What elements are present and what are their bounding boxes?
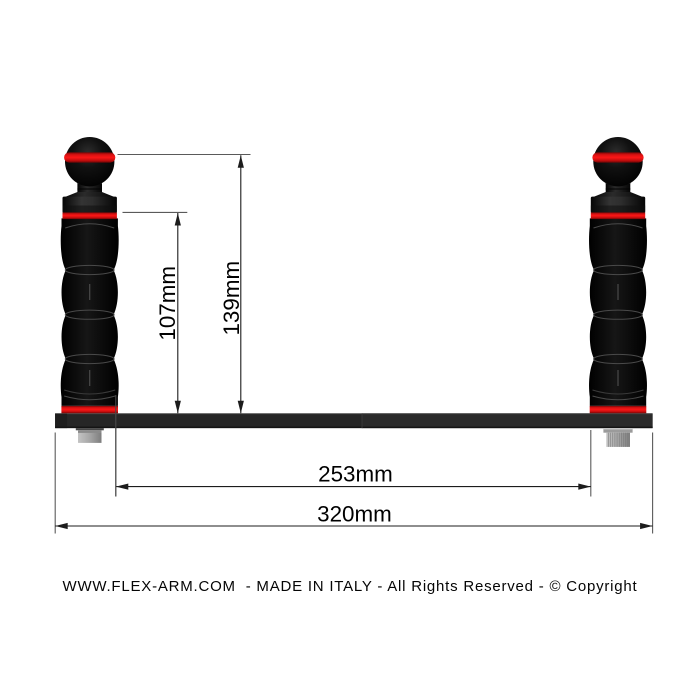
svg-text:WWW.FLEX-ARM.COM - MADE IN IT: WWW.FLEX-ARM.COM - MADE IN ITALY - All R…	[63, 578, 638, 595]
svg-text:253mm: 253mm	[318, 462, 393, 487]
svg-text:107mm: 107mm	[155, 266, 180, 341]
svg-text:139mm: 139mm	[219, 261, 244, 336]
svg-text:320mm: 320mm	[317, 502, 392, 527]
